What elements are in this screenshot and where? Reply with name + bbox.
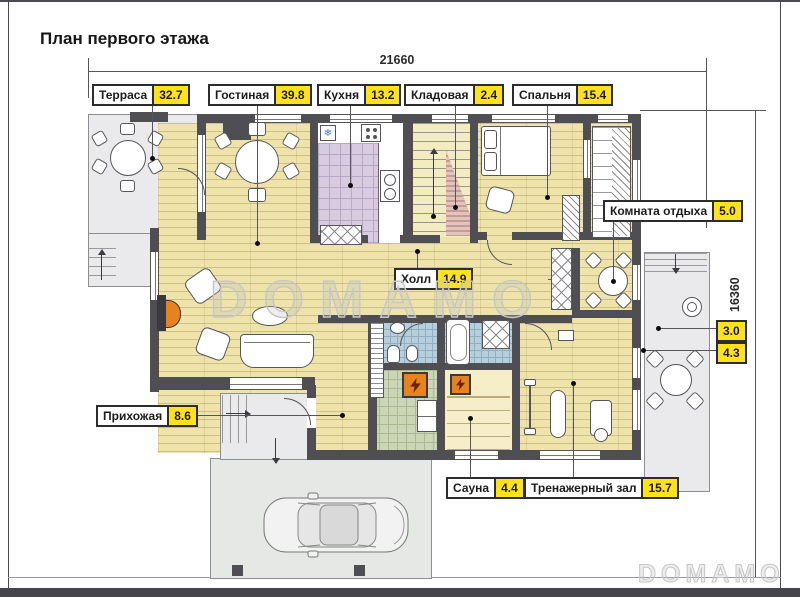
label-bathroom: 4.3 <box>716 342 747 364</box>
porch-steps <box>222 395 252 443</box>
washbasin-icon <box>390 322 405 334</box>
dimension-width-value: 21660 <box>347 53 447 67</box>
label-sauna: Сауна 4.4 <box>446 477 525 499</box>
label-entry-hall: Прихожая 8.6 <box>96 405 198 427</box>
patio-table <box>660 364 692 396</box>
leader-dot <box>150 156 155 161</box>
stove-burner <box>366 128 370 132</box>
window-lounge-east <box>632 265 641 300</box>
chair <box>120 180 135 192</box>
room-area: 3.0 <box>718 322 745 340</box>
lightning-icon <box>456 378 465 391</box>
leader-dot <box>348 183 353 188</box>
window-sauna-south <box>455 450 498 460</box>
room-area: 14.9 <box>436 270 471 288</box>
boiler-icon <box>402 372 428 398</box>
room-name: Комната отдыха <box>605 202 712 220</box>
sofa <box>240 334 314 368</box>
sauna-benches <box>447 396 510 451</box>
room-area: 2.4 <box>473 86 502 104</box>
wall-sauna-gym <box>512 315 520 452</box>
porch-steps-arrowhead <box>245 410 251 418</box>
room-area: 8.6 <box>167 407 196 425</box>
sauna-heater-icon <box>450 374 471 395</box>
room-area: 32.7 <box>152 86 187 104</box>
stair-arrowhead <box>430 148 438 154</box>
label-hall: Холл 14.9 <box>394 268 473 290</box>
window-south-living <box>230 377 302 390</box>
driveway-post-right <box>354 565 365 576</box>
room-name: Холл <box>396 270 436 288</box>
toilet-icon <box>387 345 400 363</box>
sofa-back-line <box>244 342 310 343</box>
wall-stair-bedroom <box>470 114 478 243</box>
bed-blanket-line <box>500 127 501 175</box>
barbell-disc <box>524 379 536 386</box>
dimension-width-line <box>88 71 707 72</box>
label-gym: Тренажерный зал 15.7 <box>524 477 679 499</box>
washer-divider <box>418 416 436 417</box>
driveway-post-left <box>232 565 243 576</box>
stair-arrow-dot <box>431 214 436 219</box>
wall-lounge-west <box>572 248 580 318</box>
room-name: Спальня <box>514 86 576 104</box>
room-name: Прихожая <box>98 407 167 425</box>
label-living-room: Гостиная 39.8 <box>208 84 312 106</box>
leader-dot <box>545 195 550 200</box>
room-area: 39.8 <box>274 86 309 104</box>
wall-hall-north-b <box>400 235 440 243</box>
leader-terrace <box>152 106 153 158</box>
room-name: Терраса <box>94 86 152 104</box>
page-title: План первого этажа <box>40 29 209 49</box>
dumbbells <box>558 330 574 341</box>
floor-plan-page: План первого этажа 21660 16360 <box>0 0 800 600</box>
room-area: 13.2 <box>364 86 399 104</box>
window-gym-south <box>540 450 600 460</box>
window-terrace-living <box>197 135 206 212</box>
leader-gym <box>573 384 574 477</box>
stair-arrow <box>433 152 434 216</box>
frame-bottom-bar <box>0 588 800 597</box>
leader-dot <box>453 205 458 210</box>
porch-down-arrow <box>275 438 276 460</box>
right-terrace-arrowhead <box>672 268 680 274</box>
window-bedroom-east <box>583 140 591 178</box>
coffee-table <box>252 306 288 326</box>
terrace-table <box>110 140 146 176</box>
leader-dot <box>656 326 661 331</box>
bedroom-wardrobe <box>562 195 580 241</box>
leader-storage <box>455 106 456 207</box>
barbell-disc <box>524 428 536 435</box>
leader-dot <box>571 381 576 386</box>
fireplace-base <box>157 295 166 331</box>
lounge-wardrobe <box>551 248 572 310</box>
leader-wc <box>660 328 716 329</box>
room-area: 4.3 <box>718 344 745 362</box>
bathtub-inner <box>450 324 467 361</box>
leader-hall <box>417 252 418 268</box>
porch-down-arrowhead <box>272 458 280 464</box>
wall-bath-sauna <box>437 315 445 452</box>
room-name: Кладовая <box>406 86 473 104</box>
terrace-steps-arrowhead <box>98 249 106 255</box>
room-area: 15.4 <box>576 86 611 104</box>
leader-dot <box>255 241 260 246</box>
label-storage: Кладовая 2.4 <box>404 84 504 106</box>
dimension-height-line <box>755 110 756 577</box>
dim-ext-left <box>88 58 89 98</box>
frame-right-line <box>780 2 781 588</box>
barbell-bar <box>529 382 531 432</box>
wall-gym-north <box>520 315 572 323</box>
wall-living-kitchen <box>310 114 318 243</box>
bed-pillow <box>484 152 497 171</box>
wall-kitchen-stair <box>403 114 413 243</box>
window-west-lower <box>150 252 159 300</box>
label-terrace: Терраса 32.7 <box>92 84 190 106</box>
wall-bath-tech <box>368 363 512 370</box>
window-closet-north <box>598 114 628 123</box>
leader-dot <box>415 249 420 254</box>
leader-sauna <box>470 419 471 477</box>
wall-bedroom-south-a <box>478 232 487 240</box>
room-name: Сауна <box>448 479 494 497</box>
label-wc: 3.0 <box>716 320 747 342</box>
entry-radiator <box>370 322 384 398</box>
watermark-corner: DOMAMO <box>638 560 785 589</box>
leader-dot <box>468 416 473 421</box>
window-kitchen-north <box>330 114 392 123</box>
room-name: Кухня <box>319 86 364 104</box>
leader-bathroom <box>645 350 716 351</box>
sink-bowl <box>384 174 396 186</box>
room-name: Гостиная <box>210 86 274 104</box>
kitchen-table <box>320 225 362 245</box>
window-stair-north <box>432 114 468 123</box>
room-area: 4.4 <box>494 479 523 497</box>
gym-bench <box>550 390 566 438</box>
leader-living <box>257 106 258 243</box>
frame-top-line <box>0 0 800 2</box>
terrace-steps-arrow <box>101 252 102 280</box>
sink-bowl <box>384 188 396 200</box>
door-gap-terrace-east <box>632 348 641 378</box>
leader-kitchen <box>350 106 351 185</box>
wall-lounge-south <box>572 310 640 318</box>
window-bedroom-north <box>492 114 555 123</box>
bed-pillow <box>484 130 497 149</box>
window-closet-east <box>632 160 641 200</box>
label-lounge: Комната отдыха 5.0 <box>603 200 743 222</box>
label-kitchen: Кухня 13.2 <box>317 84 401 106</box>
leader-dot <box>611 279 616 284</box>
fridge-icon: ❄ <box>320 125 336 141</box>
leader-dot <box>641 348 646 353</box>
room-name: Тренажерный зал <box>526 479 641 497</box>
window-gym-east <box>632 390 641 430</box>
stove-icon <box>361 124 381 142</box>
dim-right-connector <box>640 110 766 111</box>
porch-steps-arrow <box>226 413 246 414</box>
bidet-icon <box>406 345 418 362</box>
room-area: 5.0 <box>712 202 741 220</box>
leader-dot <box>340 413 345 418</box>
leader-lounge <box>613 222 614 281</box>
car-icon <box>262 492 410 558</box>
room-area: 15.7 <box>641 479 676 497</box>
leader-bedroom <box>547 106 548 197</box>
frame-left-line <box>8 2 9 588</box>
wall-bath-north <box>377 315 437 323</box>
machine-seat <box>594 428 608 442</box>
chair <box>120 123 135 135</box>
wall-hall-south-a <box>318 315 368 323</box>
terrace-wall-stub <box>130 112 168 122</box>
grill-inner <box>687 302 697 312</box>
shower-cabin <box>482 320 510 349</box>
leader-entry <box>178 415 342 416</box>
lightning-icon <box>410 378 421 393</box>
label-bedroom: Спальня 15.4 <box>512 84 613 106</box>
